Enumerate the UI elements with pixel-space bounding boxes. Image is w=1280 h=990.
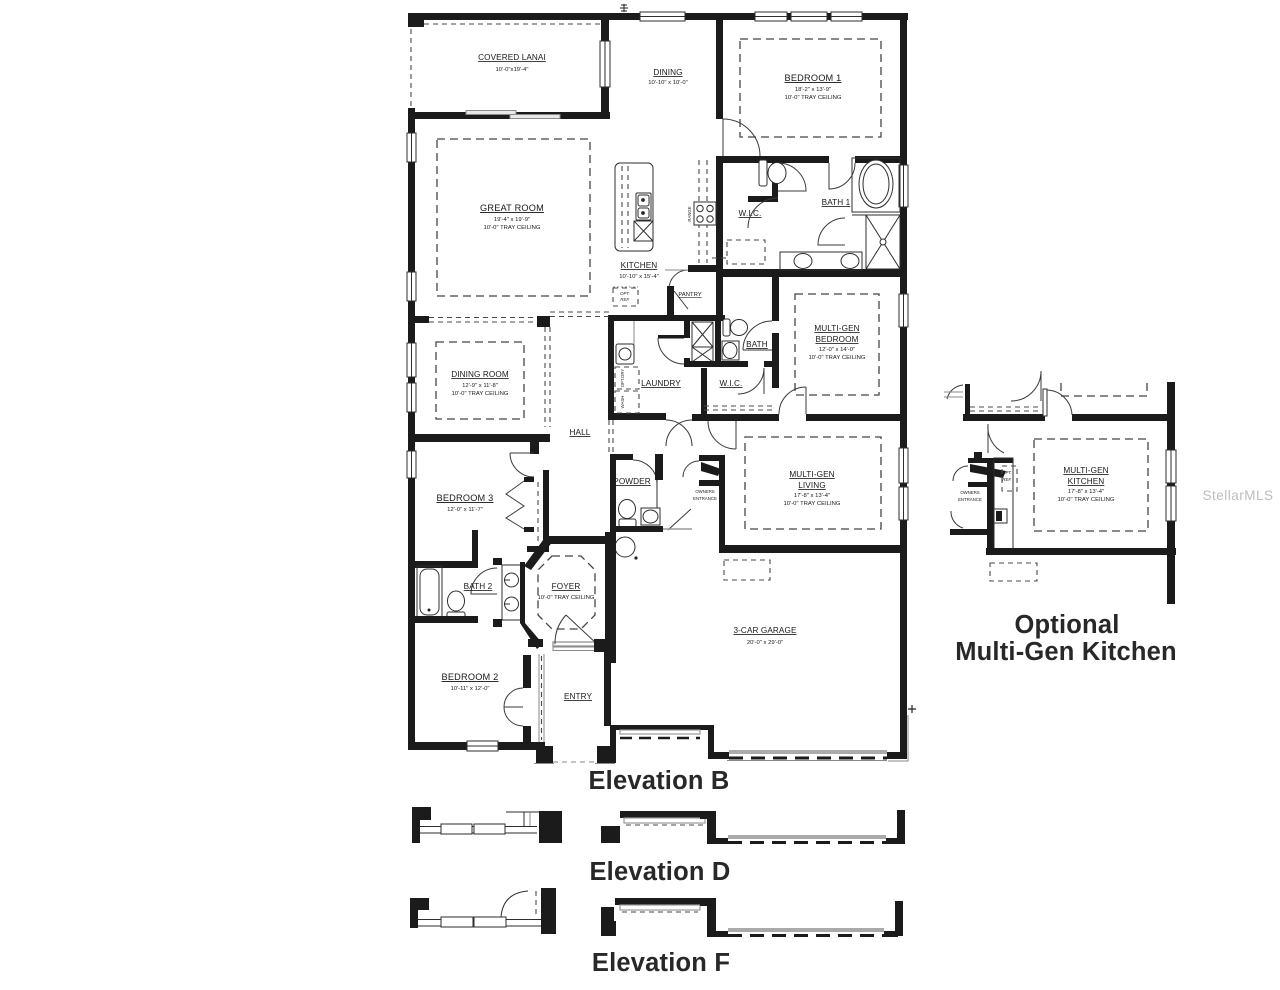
svg-text:WASH: WASH <box>620 396 625 409</box>
svg-text:19'-4" x 19'-9": 19'-4" x 19'-9" <box>494 217 530 223</box>
svg-text:OWNERS: OWNERS <box>960 490 979 495</box>
svg-text:17'-8" x 13'-4": 17'-8" x 13'-4" <box>1068 489 1104 495</box>
svg-text:RANGE: RANGE <box>687 206 692 221</box>
svg-text:POWDER: POWDER <box>613 477 650 486</box>
svg-text:Optional: Optional <box>1014 611 1119 639</box>
svg-text:Elevation F: Elevation F <box>592 949 730 977</box>
svg-text:BATH: BATH <box>746 340 768 349</box>
svg-text:OWNERS: OWNERS <box>695 489 714 494</box>
svg-text:12'-0" x 14'-0": 12'-0" x 14'-0" <box>819 347 855 353</box>
svg-text:17'-8" x 13'-4": 17'-8" x 13'-4" <box>794 493 830 499</box>
svg-text:10'-10" x 15'-4": 10'-10" x 15'-4" <box>619 274 659 280</box>
svg-text:OPT.DRY: OPT.DRY <box>620 369 625 388</box>
svg-text:OPT.: OPT. <box>1002 470 1012 475</box>
svg-text:DINING: DINING <box>653 68 682 77</box>
svg-text:MULTI-GEN: MULTI-GEN <box>814 324 859 333</box>
svg-text:10'-0" TRAY CEILING: 10'-0" TRAY CEILING <box>538 595 595 601</box>
svg-text:10'-11" x 12'-0": 10'-11" x 12'-0" <box>450 686 489 692</box>
svg-text:10'-0" TRAY CEILING: 10'-0" TRAY CEILING <box>785 95 842 101</box>
svg-text:LAUNDRY: LAUNDRY <box>641 379 681 388</box>
svg-text:MULTI-GEN: MULTI-GEN <box>1063 466 1108 475</box>
svg-text:REF.: REF. <box>620 297 629 302</box>
svg-text:10'-0" TRAY CEILING: 10'-0" TRAY CEILING <box>784 501 841 507</box>
svg-text:20'-0" x 29'-0": 20'-0" x 29'-0" <box>747 640 783 646</box>
svg-text:10'-10" x 10'-0": 10'-10" x 10'-0" <box>648 80 688 86</box>
svg-text:Elevation D: Elevation D <box>589 858 730 886</box>
svg-text:BATH 1: BATH 1 <box>822 198 851 207</box>
svg-text:KITCHEN: KITCHEN <box>1068 477 1105 486</box>
svg-text:10'-0" TRAY CEILING: 10'-0" TRAY CEILING <box>809 355 866 361</box>
svg-text:ENTRY: ENTRY <box>564 692 593 701</box>
svg-text:W.I.C.: W.I.C. <box>720 379 743 388</box>
svg-text:BATH 2: BATH 2 <box>464 582 493 591</box>
svg-text:BEDROOM 1: BEDROOM 1 <box>785 73 842 83</box>
svg-text:REF.: REF. <box>1002 477 1011 482</box>
svg-text:COVERED LANAI: COVERED LANAI <box>478 53 546 62</box>
svg-text:BEDROOM 3: BEDROOM 3 <box>437 493 494 503</box>
svg-text:LIVING: LIVING <box>798 481 825 490</box>
svg-text:PANTRY: PANTRY <box>678 292 701 298</box>
svg-text:18'-2" x 13'-9": 18'-2" x 13'-9" <box>795 87 831 93</box>
svg-text:Elevation B: Elevation B <box>588 767 729 795</box>
svg-text:BEDROOM: BEDROOM <box>815 335 858 344</box>
svg-text:3-CAR GARAGE: 3-CAR GARAGE <box>733 626 797 635</box>
svg-text:GREAT ROOM: GREAT ROOM <box>480 203 544 213</box>
svg-text:10'-0" TRAY CEILING: 10'-0" TRAY CEILING <box>484 225 541 231</box>
svg-text:OPT.: OPT. <box>620 291 630 296</box>
svg-text:DINING ROOM: DINING ROOM <box>451 370 509 379</box>
svg-text:10'-0" TRAY CEILING: 10'-0" TRAY CEILING <box>1058 497 1115 503</box>
svg-text:ENTRANCE: ENTRANCE <box>693 496 717 501</box>
svg-text:12'-9" x 11'-8": 12'-9" x 11'-8" <box>462 383 498 389</box>
svg-text:FOYER: FOYER <box>552 582 581 591</box>
svg-text:Multi-Gen Kitchen: Multi-Gen Kitchen <box>955 638 1177 666</box>
svg-text:10'-0" TRAY CEILING: 10'-0" TRAY CEILING <box>452 391 509 397</box>
svg-text:10'-0"x19'-4": 10'-0"x19'-4" <box>496 67 529 73</box>
svg-text:KITCHEN: KITCHEN <box>621 261 658 270</box>
svg-text:MULTI-GEN: MULTI-GEN <box>789 470 834 479</box>
svg-text:BEDROOM 2: BEDROOM 2 <box>442 672 499 682</box>
svg-text:HALL: HALL <box>570 428 591 437</box>
svg-text:ENTRANCE: ENTRANCE <box>958 497 982 502</box>
svg-text:12'-0" x 11'-7": 12'-0" x 11'-7" <box>447 507 483 513</box>
svg-text:StellarMLS: StellarMLS <box>1202 488 1273 503</box>
